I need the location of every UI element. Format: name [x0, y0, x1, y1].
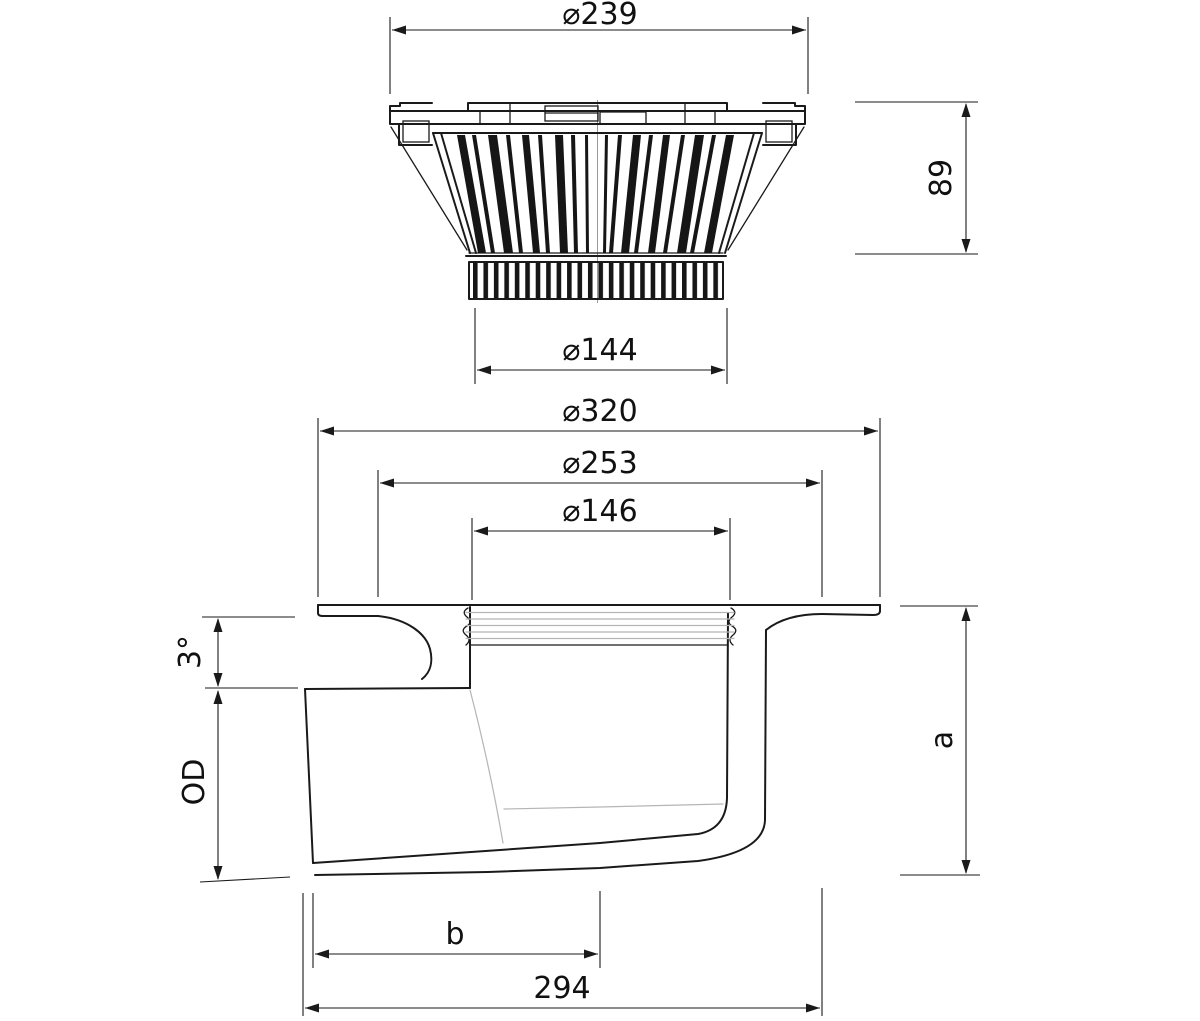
- technical-drawing: ⌀239 89 ⌀144: [0, 0, 1200, 1021]
- strainer-bar: [609, 135, 622, 253]
- body-throat: [463, 607, 736, 688]
- dim-body-slope-angle: 3°: [173, 617, 298, 688]
- dim-label-body-slope-angle: 3°: [173, 635, 208, 669]
- dim-body-outlet-to-axis: b: [313, 891, 600, 968]
- strainer-top-view: ⌀239 89 ⌀144: [390, 0, 978, 384]
- body-throat-ribs: [466, 613, 734, 639]
- dim-label-body-overall-length: 294: [533, 971, 590, 1006]
- dim-label-body-height: a: [925, 731, 960, 749]
- dim-strainer-height: 89: [855, 102, 978, 254]
- dim-label-body-outlet-to-axis: b: [445, 917, 464, 952]
- body-thread-symbol-right: [729, 608, 736, 645]
- strainer-bar: [522, 135, 540, 253]
- strainer-bar: [603, 135, 608, 253]
- dim-strainer-spigot-dia: ⌀144: [475, 308, 727, 384]
- body-outer-profile: [315, 630, 766, 875]
- dim-label-body-collar-dia: ⌀253: [562, 446, 637, 481]
- strainer-handle-detail: [545, 112, 646, 124]
- dim-body-outlet-dia: OD: [177, 690, 290, 882]
- body-thread-symbol-left: [463, 608, 470, 645]
- dim-label-strainer-outer-dia: ⌀239: [562, 0, 637, 32]
- body-flange-right-lip: [766, 605, 880, 630]
- dim-label-strainer-height: 89: [924, 159, 959, 197]
- body-flange-hook: [378, 616, 431, 679]
- dim-body-overall-length: 294: [303, 888, 822, 1016]
- dim-label-body-outlet-dia: OD: [177, 759, 212, 806]
- body-inner-profile: [313, 613, 728, 863]
- body-section-view: ⌀320 ⌀253 ⌀146 3°: [173, 394, 980, 1016]
- dim-label-strainer-spigot-dia: ⌀144: [562, 333, 637, 368]
- dim-strainer-outer-dia: ⌀239: [390, 0, 808, 94]
- dim-label-body-flange-dia: ⌀320: [562, 394, 637, 429]
- strainer-bar: [571, 135, 578, 253]
- body-interior-fillet: [470, 690, 503, 843]
- body-interior-bottom-edge: [504, 804, 723, 809]
- strainer-skirt: [466, 253, 726, 299]
- drawing-sheet: ⌀239 89 ⌀144: [0, 0, 1200, 1021]
- strainer-bar: [585, 135, 589, 253]
- strainer-cage-bars: [457, 135, 734, 253]
- body-flange-left-lip: [318, 605, 378, 616]
- dim-label-body-throat-dia: ⌀146: [562, 494, 637, 529]
- strainer-bar: [538, 135, 550, 253]
- dim-body-throat-dia: ⌀146: [472, 494, 730, 600]
- body-outlet: [305, 613, 766, 875]
- strainer-skirt-slots: [473, 263, 720, 298]
- dim-body-height: a: [900, 606, 980, 875]
- strainer-bar: [555, 135, 568, 253]
